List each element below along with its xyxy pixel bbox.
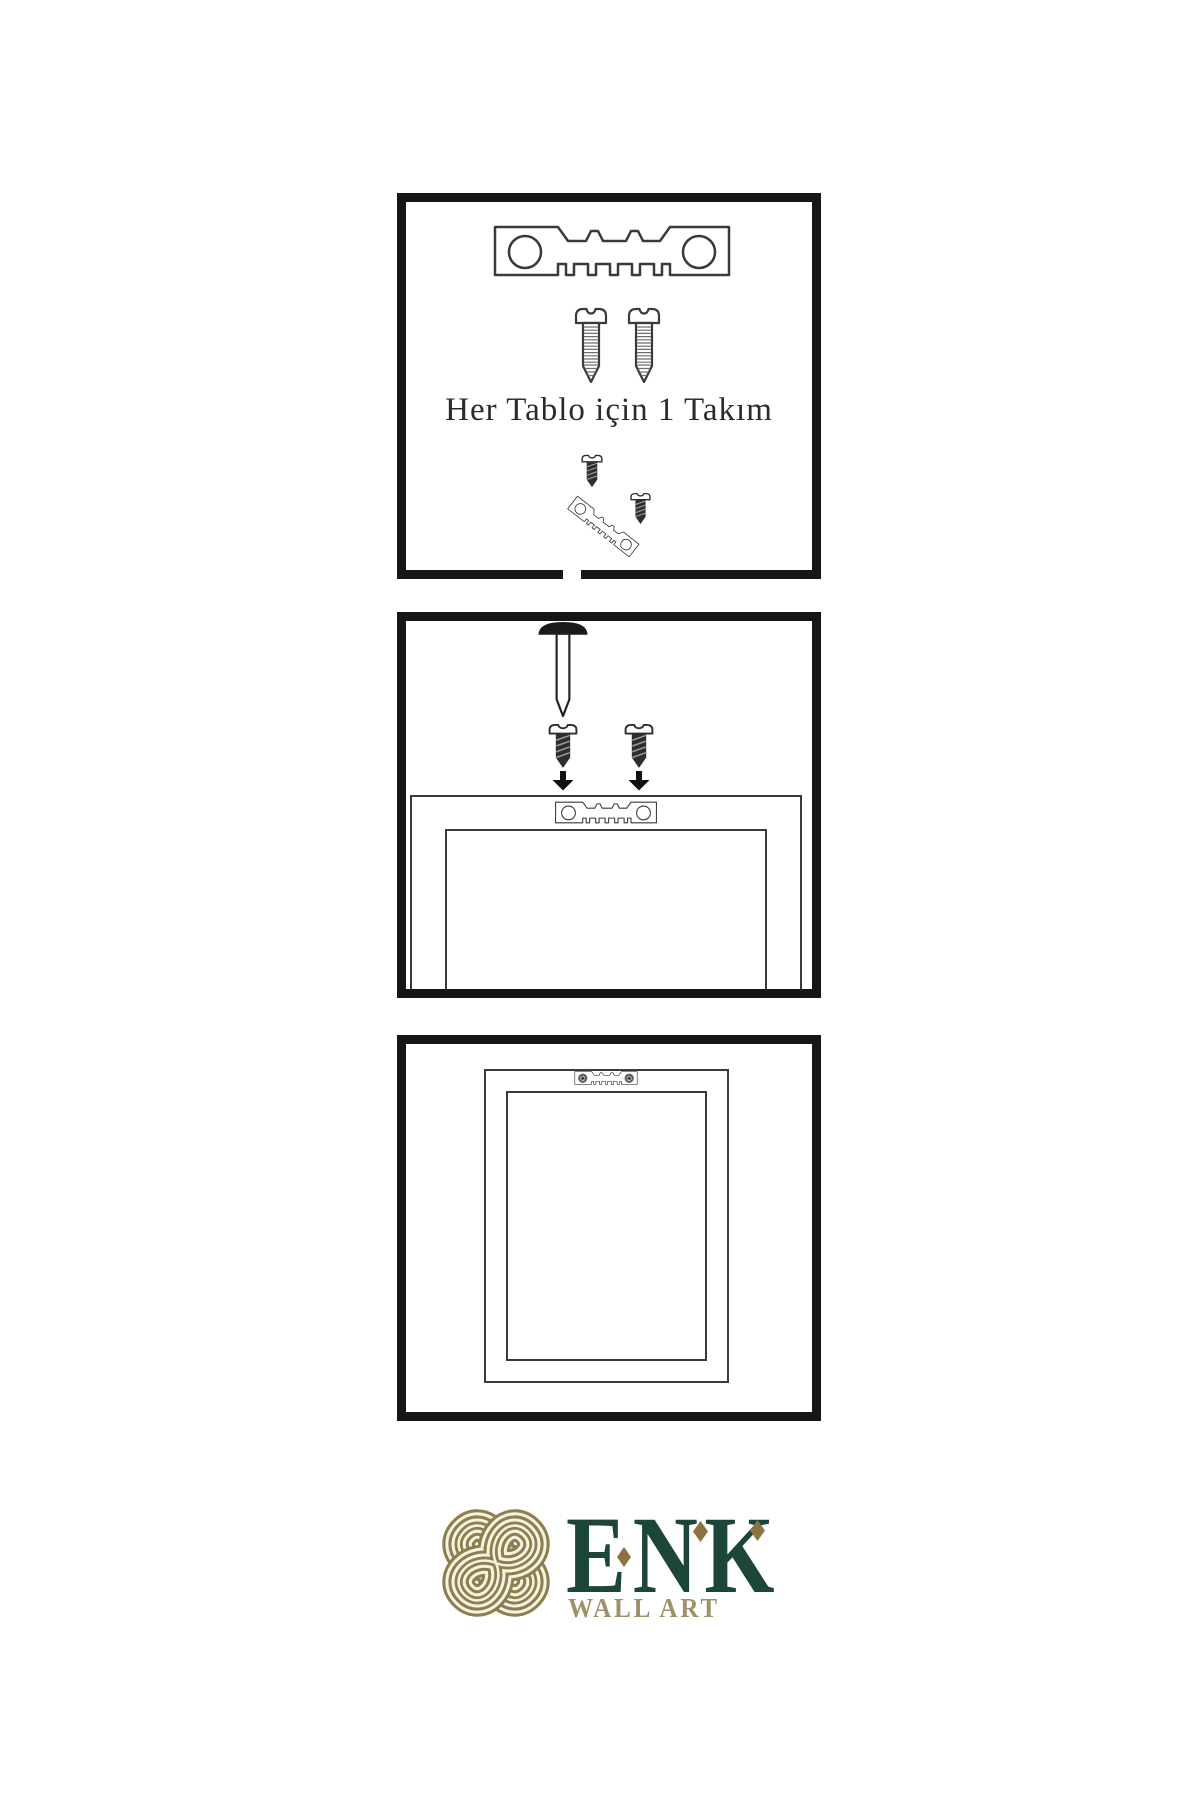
small-dark-screw-icon	[629, 492, 652, 525]
panel-hardware-kit: Her Tablo için 1 Takım	[397, 193, 821, 579]
panel-install-on-frame	[397, 612, 821, 998]
brand-subtitle: WALL ART	[568, 1593, 720, 1624]
down-arrow-icon	[552, 771, 574, 791]
dark-screw-icon	[546, 723, 580, 769]
sawtooth-hanger-icon	[492, 222, 732, 280]
sawtooth-hanger-icon	[554, 800, 658, 825]
wall-nail-icon	[536, 621, 590, 719]
instruction-sheet: Her Tablo için 1 Takım ENK WALL ART	[0, 0, 1200, 1800]
screw-icon	[626, 306, 662, 386]
small-dark-screw-icon	[580, 454, 604, 488]
screw-icon	[573, 306, 609, 386]
panel-finished-frame	[397, 1035, 821, 1421]
border-gap-artifact	[563, 568, 581, 580]
kit-caption: Her Tablo için 1 Takım	[406, 392, 812, 429]
sawtooth-hanger-screwed-icon	[574, 1070, 638, 1086]
enk-knot-logo	[435, 1502, 557, 1624]
frame-back-inner-edge	[506, 1091, 707, 1361]
frame-back-inner-edge	[445, 829, 767, 998]
dark-screw-icon	[622, 723, 656, 769]
down-arrow-icon	[628, 771, 650, 791]
